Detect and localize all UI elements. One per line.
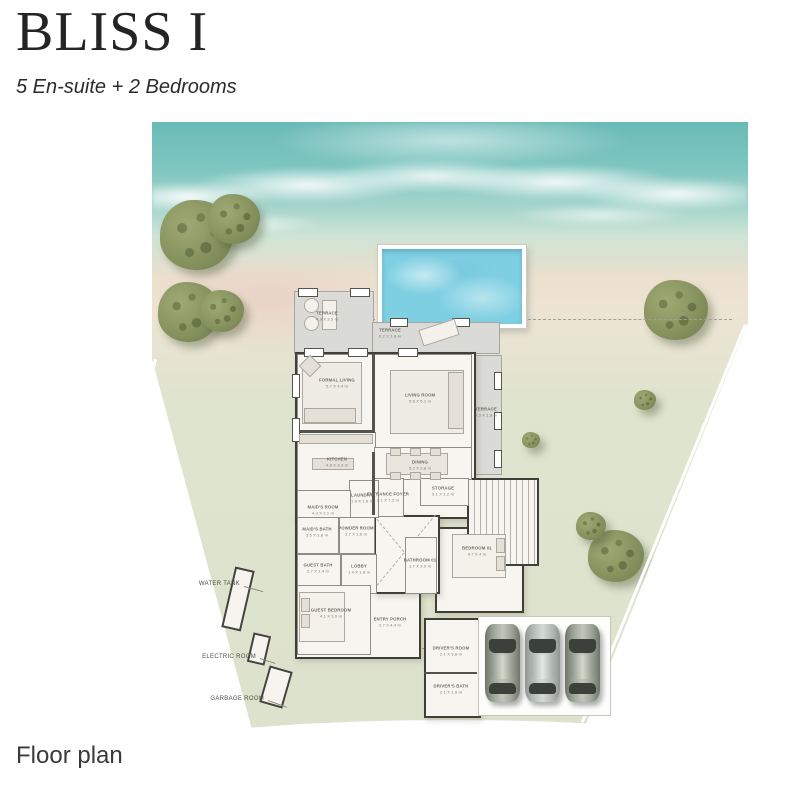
room-label-drivers-room: DRIVER'S ROOM2.1 X 3.8 m <box>433 645 470 656</box>
window <box>494 450 502 468</box>
car-rear-glass <box>569 683 596 694</box>
window <box>350 288 370 297</box>
window <box>298 288 318 297</box>
dining-chair <box>410 472 421 480</box>
kitchen-counter <box>299 434 373 444</box>
pillow <box>496 556 505 571</box>
garbage-room-label: GARBAGE ROOM <box>182 696 264 702</box>
room-label-dining: DINING5.2 X 3.8 m <box>409 459 431 470</box>
dining-chair <box>430 448 441 456</box>
room-label-entrance-foyer: ENTRANCE FOYER2.1 X 7.2 m <box>367 491 409 502</box>
room-label-storage: STORAGE3.1 X 1.2 m <box>432 485 454 496</box>
room-label-living-room: LIVING ROOM5.6 X 5.1 m <box>405 392 436 403</box>
page-subtitle: 5 En-suite + 2 Bedrooms <box>16 76 237 99</box>
tree <box>208 194 260 244</box>
window <box>348 348 368 357</box>
room-label-kitchen: KITCHEN4.8 X 3.3 m <box>326 456 348 467</box>
sofa <box>304 408 356 423</box>
car-rear-glass <box>489 683 516 694</box>
room-label-guest-bedroom: GUEST BEDROOM4.1 X 3.9 m <box>311 607 351 618</box>
room-label-laundry: LAUNDRY1.9 X 1.6 m <box>351 492 373 503</box>
room-label-bedroom-01: BEDROOM 014.7 X 4 m <box>462 545 492 556</box>
room-label-drivers-bath: DRIVER'S BATH2.1 X 1.8 m <box>434 683 469 694</box>
room-label-lobby: LOBBY1.4 X 1.8 m <box>348 563 370 574</box>
dining-chair <box>410 448 421 456</box>
tree <box>200 290 244 332</box>
window <box>292 374 300 398</box>
car-roof <box>491 655 514 679</box>
tree <box>644 280 708 340</box>
water-tank-label: WATER TANK <box>158 581 240 587</box>
swimming-pool <box>378 245 526 328</box>
dining-chair <box>390 472 401 480</box>
bush <box>634 390 656 410</box>
bush <box>522 432 540 448</box>
interior-wall <box>424 672 477 674</box>
car-top-view <box>485 624 520 702</box>
car-windshield <box>569 639 596 653</box>
room-label-terrace-right: TERRACE3.3 X 1.8 m <box>475 406 497 417</box>
window <box>494 372 502 390</box>
window <box>304 348 324 357</box>
car-roof <box>571 655 594 679</box>
electric-room-label: ELECTRIC ROOM <box>174 654 256 660</box>
interior-wall <box>372 452 375 515</box>
drivers-block <box>424 618 481 718</box>
page-title: BLISS I <box>16 0 208 64</box>
car-rear-glass <box>529 683 556 694</box>
floor-plan-caption: Floor plan <box>16 742 123 770</box>
site-plan: TERRACE4.9 X 3.5 m TERRACE6.2 X 1.8 m FO… <box>152 122 748 730</box>
room-label-entry-porch: ENTRY PORCH2.7 X 4.4 m <box>374 616 407 627</box>
sofa <box>448 372 464 429</box>
room-label-guest-bath: GUEST BATH2.7 X 1.4 m <box>303 562 332 573</box>
car-roof <box>531 655 554 679</box>
interior-wall <box>297 430 375 433</box>
pillow <box>301 614 310 628</box>
car-windshield <box>489 639 516 653</box>
car-windshield <box>529 639 556 653</box>
tree <box>576 512 606 540</box>
window <box>398 348 418 357</box>
room-label-formal-living: FORMAL LIVING5.7 X 4.4 m <box>319 377 355 388</box>
car-top-view <box>565 624 600 702</box>
room-label-terrace-lounge: TERRACE4.9 X 3.5 m <box>316 310 338 321</box>
window <box>390 318 408 327</box>
room-label-maids-room: MAID'S ROOM4.3 X 2.1 m <box>307 504 338 515</box>
room-label-powder-room: POWDER ROOM1.7 X 1.6 m <box>338 525 374 536</box>
car-top-view <box>525 624 560 702</box>
room-label-maids-bath: MAID'S BATH3.5 X 1.8 m <box>302 526 331 537</box>
room-label-bathroom-01: BATHROOM 011.7 X 3.9 m <box>404 557 437 568</box>
interior-wall <box>372 354 375 432</box>
dining-chair <box>430 472 441 480</box>
dining-chair <box>390 448 401 456</box>
room-label-terrace-top: TERRACE6.2 X 1.8 m <box>379 327 401 338</box>
pillow <box>301 598 310 612</box>
pillow <box>496 538 505 553</box>
